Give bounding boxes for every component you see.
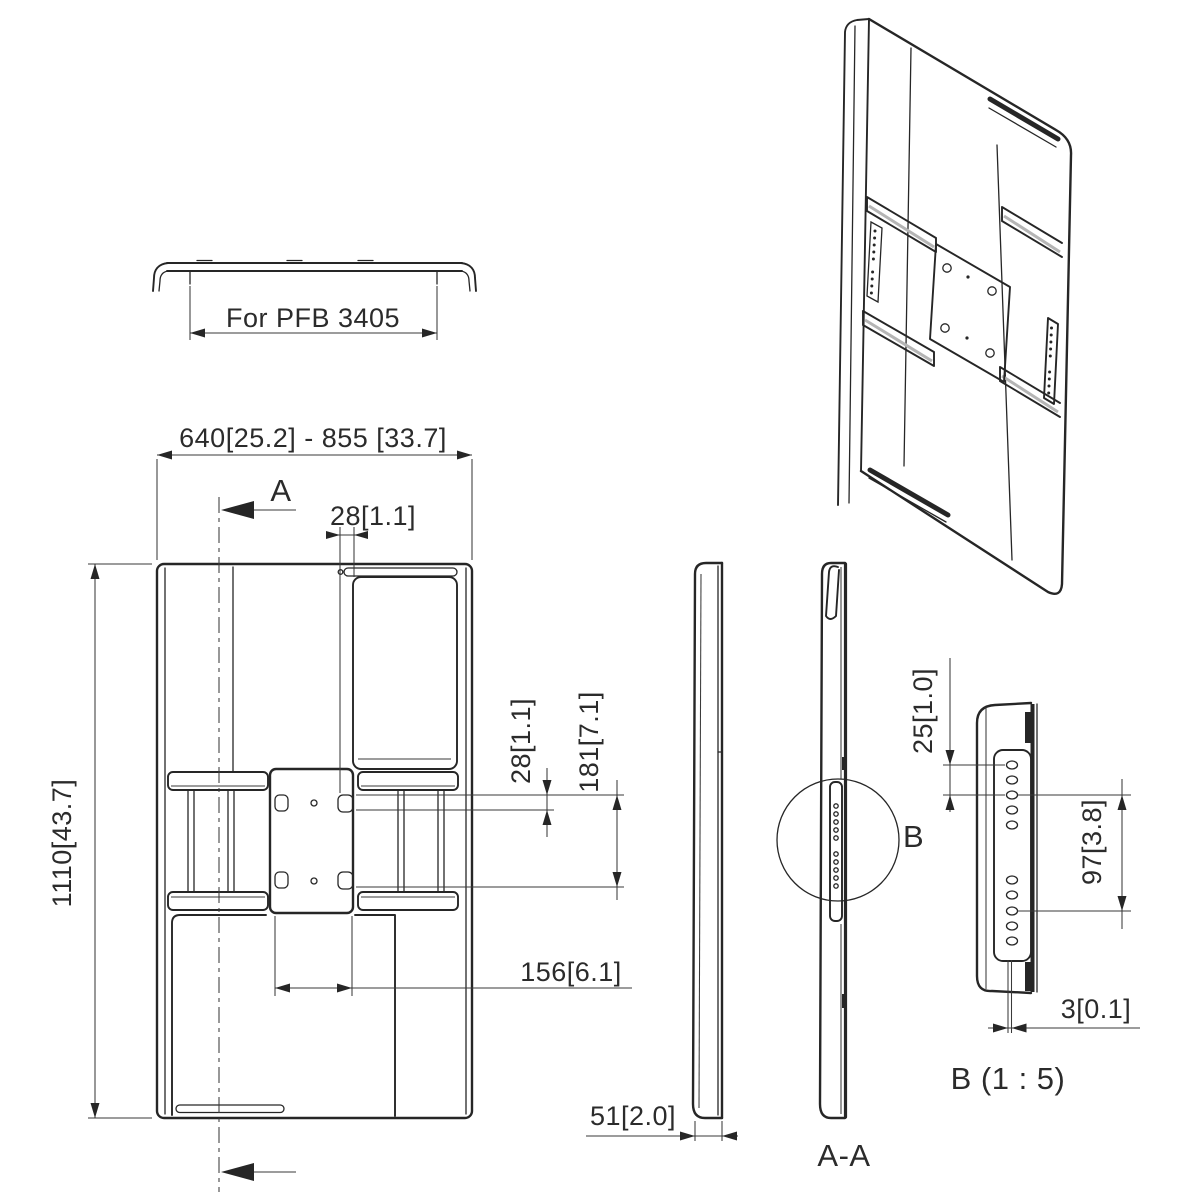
plate-hole <box>338 872 353 889</box>
dim-group-spacing-text: 97[3.8] <box>1077 799 1107 885</box>
front-view <box>157 564 472 1118</box>
section-cut-arrow-bottom <box>221 1163 296 1181</box>
technical-drawing-canvas: For PFB 3405 640[25.2] - 855 [33.7] <box>0 0 1200 1200</box>
detail-marker-text: B <box>903 819 924 854</box>
top-view-dimension: For PFB 3405 <box>190 286 437 340</box>
dim-hole-pitch-vertical: 181[7.1] <box>356 691 624 900</box>
dim-height: 1110[43.7] <box>47 564 152 1118</box>
section-label-text: A <box>270 473 291 508</box>
dim-hole-pitch-horizontal: 156[6.1] <box>275 916 632 996</box>
dim-height-text: 1110[43.7] <box>47 779 77 908</box>
dim-hole-spacing: 25[1.0] <box>908 658 1005 812</box>
plate-hole <box>275 795 288 811</box>
plate-hole <box>275 872 288 888</box>
upper-right-panel <box>353 577 457 769</box>
dim-hole-pitch-horizontal-text: 156[6.1] <box>520 957 622 987</box>
dim-plate-thickness-text: 3[0.1] <box>1061 994 1132 1024</box>
top-view: For PFB 3405 <box>153 261 476 341</box>
dim-group-spacing: 97[3.8] <box>1018 779 1131 929</box>
dim-hole-spacing-text: 25[1.0] <box>908 668 938 754</box>
mount-rails <box>168 772 458 910</box>
top-slot <box>344 568 457 576</box>
dim-depth-text: 51[2.0] <box>590 1101 676 1131</box>
bottom-slot <box>176 1105 284 1113</box>
dim-slot-offset: 28[1.1] <box>326 501 416 793</box>
perspective-vesa-plate <box>930 244 1010 382</box>
perspective-rails <box>863 197 1062 417</box>
perspective-view <box>826 19 1071 619</box>
top-view-dim-text: For PFB 3405 <box>226 303 400 333</box>
hook-strip-detail-holes <box>1007 761 1018 945</box>
front-view-outline <box>157 564 472 1118</box>
dim-hole-height-text: 28[1.1] <box>506 698 536 784</box>
section-cut-arrow-top: A <box>221 473 296 519</box>
dim-depth: 51[2.0] <box>586 1101 738 1141</box>
perspective-hole-strip-right <box>1044 318 1058 404</box>
perspective-hole-strip-left <box>867 222 882 302</box>
front-width-dim-text: 640[25.2] - 855 [33.7] <box>179 423 447 453</box>
section-view-aa: B A-A <box>777 563 924 1173</box>
dim-slot-width-text: 28[1.1] <box>330 501 416 531</box>
vesa-plate <box>270 769 353 913</box>
dim-hole-pitch-vertical-text: 181[7.1] <box>574 691 604 793</box>
side-view: 51[2.0] <box>586 563 738 1141</box>
hook-strip-holes <box>834 804 838 888</box>
front-view-dimensions: A 28[1.1] 1110[43.7] 28[1.1] <box>47 473 632 1192</box>
dim-plate-thickness: 3[0.1] <box>988 960 1140 1033</box>
front-width-dimension: 640[25.2] - 855 [33.7] <box>157 423 472 560</box>
plate-hole <box>338 795 353 812</box>
detail-view-b: 25[1.0] 97[3.8] 3[0.1] B (1 : 5) <box>908 658 1140 1096</box>
detail-view-label: B (1 : 5) <box>951 1061 1066 1096</box>
section-view-label: A-A <box>817 1138 870 1173</box>
